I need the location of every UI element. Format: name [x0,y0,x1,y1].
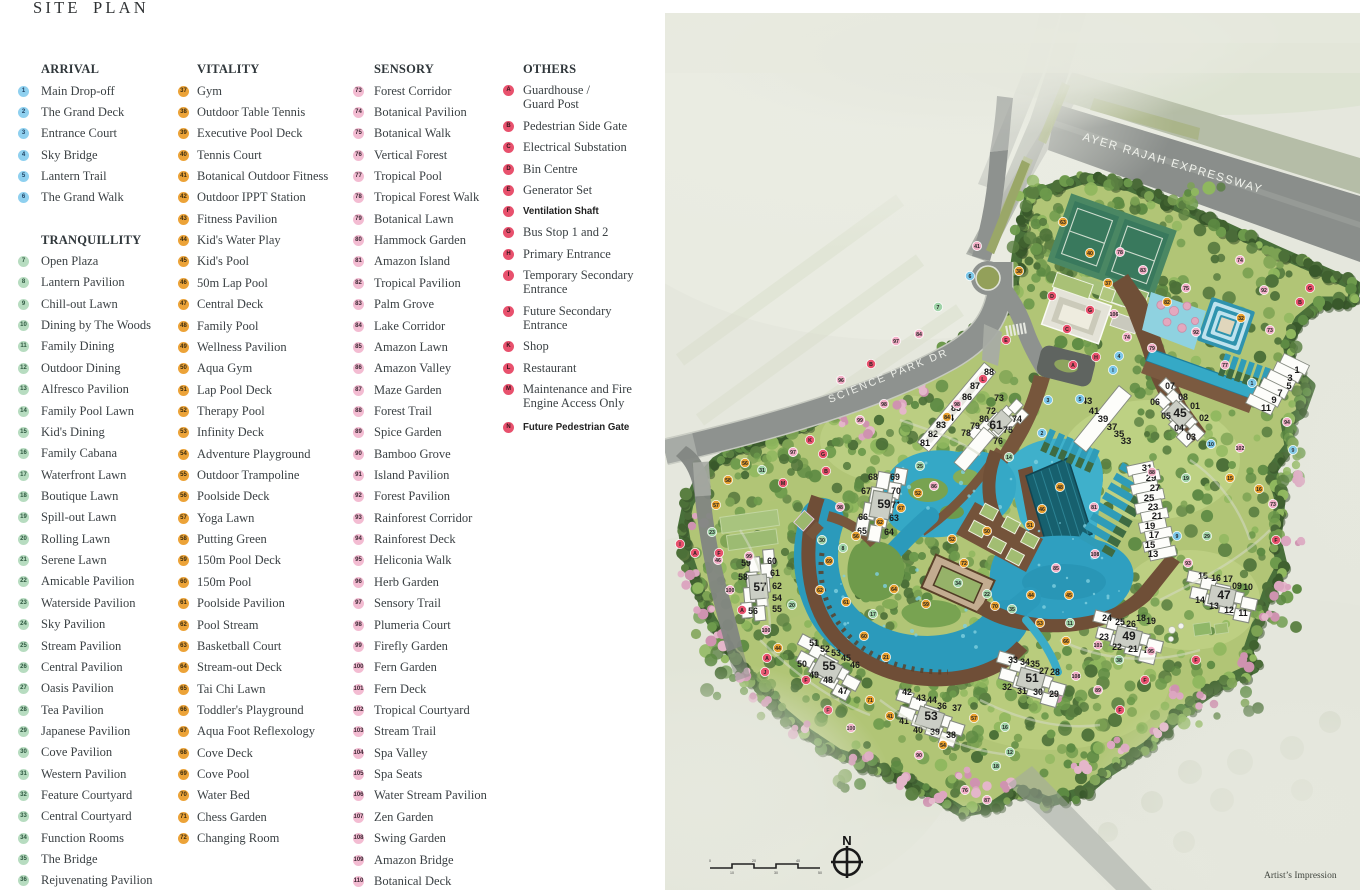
svg-text:88: 88 [1149,470,1155,476]
svg-text:53: 53 [924,709,938,723]
svg-text:74: 74 [1012,414,1022,424]
svg-text:56: 56 [742,461,748,467]
svg-text:60: 60 [861,634,867,640]
svg-text:92: 92 [1261,288,1267,294]
svg-text:17: 17 [870,612,876,618]
svg-text:8: 8 [842,546,845,552]
svg-text:45: 45 [1173,406,1187,420]
svg-text:51: 51 [1027,523,1033,529]
svg-text:15: 15 [1227,476,1233,482]
svg-text:5: 5 [1286,381,1292,392]
svg-text:16: 16 [1256,487,1262,493]
svg-text:63: 63 [1060,220,1066,226]
svg-text:66: 66 [858,512,868,522]
svg-text:64: 64 [884,527,894,537]
svg-text:61: 61 [770,568,780,578]
svg-text:38: 38 [1016,269,1022,275]
svg-text:25: 25 [917,464,923,470]
svg-text:79: 79 [970,421,980,431]
svg-text:47: 47 [838,686,848,696]
svg-text:71: 71 [867,698,873,704]
svg-text:76: 76 [993,436,1003,446]
svg-text:9: 9 [1176,534,1179,540]
svg-text:21: 21 [883,655,889,661]
svg-text:F: F [1143,678,1146,684]
svg-text:16: 16 [1211,573,1221,583]
svg-text:37: 37 [952,703,962,713]
svg-text:30: 30 [819,538,825,544]
svg-text:03: 03 [1186,432,1196,442]
svg-text:18: 18 [1136,613,1146,623]
svg-text:75: 75 [1003,425,1013,435]
svg-text:67: 67 [861,486,871,496]
svg-text:0: 0 [709,859,711,863]
svg-text:53: 53 [831,648,841,658]
svg-text:24: 24 [1102,613,1112,623]
svg-text:99: 99 [857,418,863,424]
svg-text:48: 48 [1057,485,1063,491]
svg-text:11: 11 [1067,621,1073,627]
svg-text:C: C [1065,327,1069,333]
svg-text:59: 59 [877,497,891,511]
svg-text:78: 78 [961,428,971,438]
svg-text:44: 44 [927,695,937,705]
svg-text:90: 90 [916,753,922,759]
svg-text:51: 51 [1025,671,1039,685]
svg-text:97: 97 [893,339,899,345]
svg-text:70: 70 [992,604,998,610]
svg-text:34: 34 [1020,657,1030,667]
svg-text:49: 49 [1122,629,1136,643]
svg-text:29: 29 [1204,534,1210,540]
svg-text:41: 41 [887,714,893,720]
svg-text:31: 31 [759,468,765,474]
svg-text:19: 19 [1146,616,1156,626]
svg-text:92: 92 [1193,330,1199,336]
svg-text:07: 07 [1165,381,1175,391]
svg-text:13: 13 [1148,549,1159,560]
svg-text:26: 26 [1126,619,1136,629]
svg-text:22: 22 [1112,642,1122,652]
svg-text:100: 100 [726,588,735,594]
svg-text:77: 77 [1222,363,1228,369]
svg-text:12: 12 [1007,750,1013,756]
svg-text:B: B [869,362,873,368]
svg-text:52: 52 [949,537,955,543]
svg-text:F: F [1274,538,1277,544]
svg-text:56: 56 [853,534,859,540]
svg-text:45: 45 [1066,593,1072,599]
svg-text:09: 09 [1232,581,1242,591]
svg-text:H: H [1094,355,1098,361]
svg-text:31: 31 [1017,686,1027,696]
svg-text:10: 10 [1243,582,1253,592]
svg-text:57: 57 [713,503,719,509]
svg-text:32: 32 [1002,682,1012,692]
svg-text:108: 108 [1072,674,1081,680]
svg-text:72: 72 [961,561,967,567]
svg-text:57: 57 [971,716,977,722]
svg-text:37: 37 [1105,281,1111,287]
svg-text:D: D [1050,294,1054,300]
svg-text:102: 102 [1236,446,1245,452]
svg-text:06: 06 [1150,397,1160,407]
svg-text:12: 12 [1224,605,1234,615]
svg-text:81: 81 [1091,505,1097,511]
svg-text:50: 50 [984,529,990,535]
svg-text:89: 89 [1095,688,1101,694]
svg-text:58: 58 [725,478,731,484]
svg-text:13: 13 [1209,601,1219,611]
svg-text:N: N [842,833,851,848]
svg-text:53: 53 [1037,621,1043,627]
svg-text:14: 14 [1006,455,1012,461]
svg-text:84: 84 [916,332,922,338]
svg-text:20: 20 [789,603,795,609]
svg-text:96: 96 [838,378,844,384]
svg-text:A: A [765,656,769,662]
svg-text:56: 56 [748,606,758,616]
svg-text:33: 33 [1121,436,1132,447]
svg-text:83: 83 [1140,268,1146,274]
svg-text:42: 42 [902,687,912,697]
svg-text:98: 98 [881,402,887,408]
svg-text:47: 47 [1217,588,1231,602]
svg-text:63: 63 [889,513,899,523]
svg-text:32: 32 [1238,316,1244,322]
svg-text:52: 52 [820,644,830,654]
svg-text:41: 41 [974,244,980,250]
svg-text:A: A [693,551,697,557]
svg-text:40: 40 [796,859,800,863]
svg-text:44: 44 [775,646,781,652]
svg-text:04: 04 [1174,423,1184,433]
svg-text:59: 59 [923,602,929,608]
svg-text:E: E [1004,338,1008,344]
svg-text:33: 33 [1008,655,1018,665]
svg-text:30: 30 [1033,687,1043,697]
svg-text:G: G [1308,286,1312,292]
svg-text:97: 97 [790,450,796,456]
svg-text:54: 54 [772,593,782,603]
svg-text:82: 82 [1164,300,1170,306]
svg-text:101: 101 [1094,643,1103,649]
svg-text:43: 43 [916,693,926,703]
svg-text:9: 9 [1271,395,1276,406]
svg-text:81: 81 [920,438,930,448]
svg-text:62: 62 [817,588,823,594]
svg-text:51: 51 [809,638,819,648]
svg-text:108: 108 [1091,552,1100,558]
svg-text:23: 23 [709,530,715,536]
svg-text:10: 10 [1208,442,1214,448]
svg-text:55: 55 [772,604,782,614]
svg-text:22: 22 [984,592,990,598]
svg-text:85: 85 [1053,566,1059,572]
svg-text:95: 95 [1148,649,1154,655]
svg-text:20: 20 [752,859,756,863]
svg-text:7: 7 [937,305,940,311]
svg-text:G: G [1088,308,1092,314]
svg-text:35: 35 [1009,607,1015,613]
svg-text:27: 27 [1039,666,1049,676]
svg-text:38: 38 [1116,658,1122,664]
svg-text:75: 75 [1183,286,1189,292]
svg-text:70: 70 [891,486,901,496]
svg-text:5: 5 [1079,397,1082,403]
svg-text:73: 73 [1267,328,1273,334]
svg-text:99: 99 [746,554,752,560]
svg-text:100: 100 [762,628,771,634]
svg-text:A: A [1071,363,1075,369]
svg-text:25: 25 [1115,617,1125,627]
svg-text:4: 4 [1118,354,1121,360]
svg-text:52: 52 [915,491,921,497]
svg-text:11: 11 [1261,403,1272,414]
svg-text:86: 86 [962,392,972,402]
svg-text:21: 21 [1128,644,1138,654]
svg-text:46: 46 [715,558,721,564]
svg-text:69: 69 [890,472,900,482]
svg-text:G: G [821,452,825,458]
svg-text:05: 05 [1161,411,1171,421]
svg-text:10: 10 [730,871,734,875]
svg-text:78: 78 [1117,250,1123,256]
svg-text:86: 86 [931,484,937,490]
svg-text:2: 2 [1041,431,1044,437]
svg-text:66: 66 [1063,639,1069,645]
svg-text:79: 79 [1149,346,1155,352]
svg-text:48: 48 [823,675,833,685]
svg-text:67: 67 [898,506,904,512]
svg-text:74: 74 [1124,335,1130,341]
svg-text:36: 36 [937,701,947,711]
svg-text:6: 6 [969,274,972,280]
svg-text:68: 68 [868,472,878,482]
svg-text:40: 40 [1087,251,1093,257]
svg-text:34: 34 [955,581,961,587]
svg-text:29: 29 [1049,689,1059,699]
svg-text:60: 60 [767,556,777,566]
svg-text:84: 84 [944,415,950,421]
svg-text:73: 73 [1270,502,1276,508]
svg-text:74: 74 [1237,258,1243,264]
svg-text:58: 58 [738,572,748,582]
svg-text:01: 01 [1190,401,1200,411]
svg-text:11: 11 [1238,608,1247,618]
svg-text:7: 7 [1277,388,1282,399]
svg-text:106: 106 [1110,312,1119,318]
svg-text:14: 14 [1195,595,1205,605]
svg-text:23: 23 [1099,632,1109,642]
svg-text:76: 76 [962,788,968,794]
svg-text:46: 46 [850,660,860,670]
svg-text:55: 55 [822,659,836,673]
svg-text:28: 28 [1050,667,1060,677]
svg-text:3: 3 [1047,398,1050,404]
svg-text:62: 62 [877,520,883,526]
svg-text:62: 62 [772,581,782,591]
svg-text:16: 16 [1002,725,1008,731]
svg-text:61: 61 [843,600,849,606]
svg-text:87: 87 [970,381,980,391]
svg-text:98: 98 [837,505,843,511]
svg-text:02: 02 [1199,413,1209,423]
svg-text:61: 61 [989,418,1003,432]
svg-text:80: 80 [979,414,989,424]
svg-text:44: 44 [1028,593,1034,599]
svg-text:08: 08 [1178,392,1188,402]
svg-text:46: 46 [1039,507,1045,513]
svg-text:K: K [808,438,812,444]
svg-text:69: 69 [826,559,832,565]
svg-text:1: 1 [1251,381,1254,387]
svg-text:F: F [1194,658,1197,664]
svg-text:50: 50 [818,871,822,875]
svg-text:54: 54 [940,743,946,749]
svg-text:73: 73 [994,393,1004,403]
svg-text:M: M [781,481,785,487]
svg-text:93: 93 [1185,561,1191,567]
svg-text:64: 64 [891,587,897,593]
svg-text:19: 19 [1183,476,1189,482]
svg-text:B: B [824,469,828,475]
svg-text:30: 30 [774,871,778,875]
svg-text:Artist’s Impression: Artist’s Impression [1264,871,1337,881]
svg-text:98: 98 [954,402,960,408]
svg-text:18: 18 [993,764,999,770]
svg-text:F: F [1118,708,1121,714]
svg-text:F: F [717,551,720,557]
svg-text:A: A [740,608,744,614]
svg-text:B: B [1298,300,1302,306]
svg-text:50: 50 [797,659,807,669]
